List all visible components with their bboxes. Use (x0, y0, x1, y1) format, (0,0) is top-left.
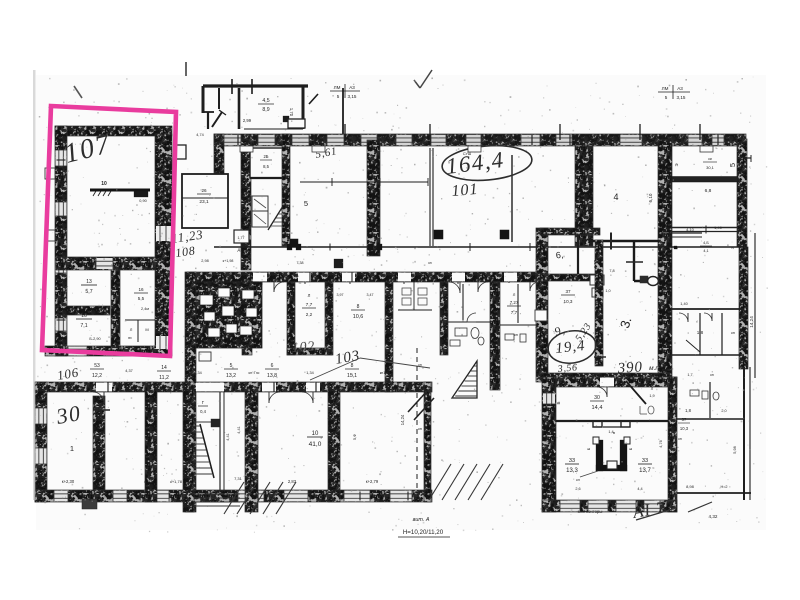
svg-text:Н=10,20/11,20: Н=10,20/11,20 (403, 529, 444, 536)
